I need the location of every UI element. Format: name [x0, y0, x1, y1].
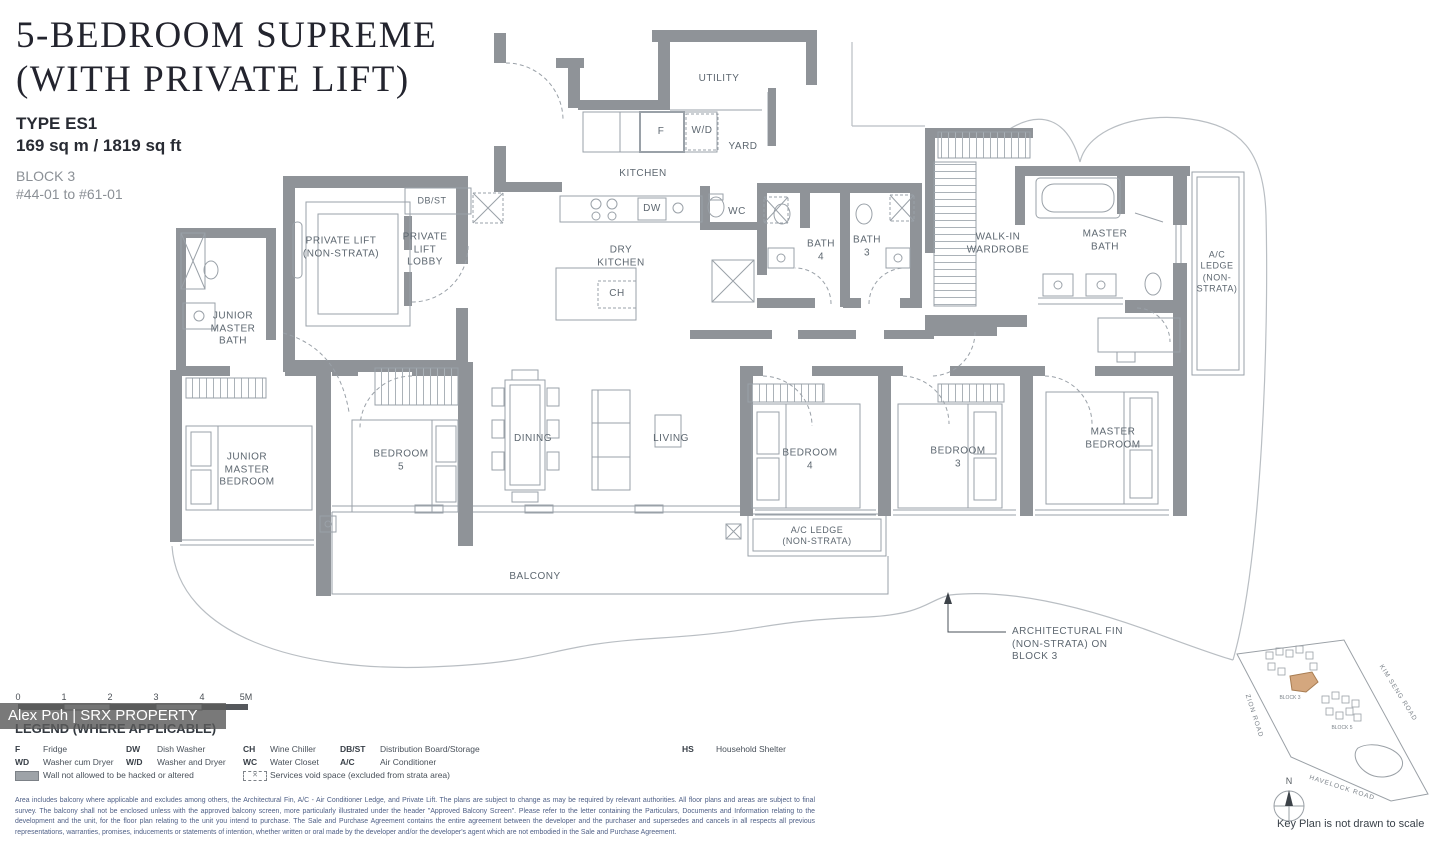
- room-label-junior-master-bedroom: JUNIOR MASTER BEDROOM: [219, 451, 274, 489]
- room-label-ac-ledge-bottom: A/C LEDGE (NON-STRATA): [782, 525, 851, 548]
- room-label-private-lift-lobby: PRIVATE LIFT LOBBY: [403, 231, 448, 269]
- room-label-living: LIVING: [653, 433, 689, 446]
- arch-fin-leader: [944, 592, 1006, 632]
- room-label-private-lift: PRIVATE LIFT (NON-STRATA): [303, 236, 379, 261]
- room-label-junior-master-bath: JUNIOR MASTER BATH: [211, 310, 256, 348]
- block-number: BLOCK 3: [16, 168, 75, 184]
- legend-abbr: HS: [682, 744, 694, 754]
- scale-tick-0: 0: [15, 692, 20, 702]
- architectural-fin-outline: [172, 42, 1267, 667]
- appliance-label-washer-dryer: W/D: [692, 125, 713, 138]
- legend-abbr: WD: [15, 757, 29, 767]
- legend-abbr-ch: CH: [243, 744, 255, 754]
- room-label-wc: WC: [728, 206, 746, 219]
- legend-abbr: CH: [243, 744, 255, 754]
- legend-label: Wall not allowed to be hacked or altered: [43, 770, 194, 780]
- legend-abbr: F: [15, 744, 20, 754]
- legend-abbr: WC: [243, 757, 257, 767]
- legend-abbr-ac: A/C: [340, 757, 355, 767]
- legend-abbr-dw: DW: [126, 744, 140, 754]
- room-label-balcony: BALCONY: [509, 571, 560, 584]
- appliance-label-fridge: F: [658, 126, 665, 139]
- room-label-yard: YARD: [728, 141, 757, 154]
- scale-tick-1: 1: [61, 692, 66, 702]
- legend-label: Washer cum Dryer: [43, 757, 114, 767]
- room-label-bath3: BATH 3: [853, 235, 881, 260]
- legend-label: Services void space (excluded from strat…: [270, 770, 450, 780]
- keyplan-block5-label: BLOCK 5: [1331, 725, 1352, 731]
- legend-label: Wine Chiller: [270, 744, 316, 754]
- legend-abbr-dbst: DB/ST: [340, 744, 366, 754]
- keyplan-block3-label: BLOCK 3: [1279, 695, 1300, 701]
- page-title: 5-BEDROOM SUPREME: [16, 14, 437, 57]
- room-label-bedroom3: BEDROOM 3: [930, 446, 985, 471]
- legend-void-symbol: ✕: [243, 771, 267, 781]
- scale-tick-3: 3: [153, 692, 158, 702]
- legend-label: Water Closet: [270, 757, 319, 767]
- scale-tick-5m: 5M: [240, 692, 253, 702]
- room-label-bedroom4: BEDROOM 4: [782, 448, 837, 473]
- unit-range: #44-01 to #61-01: [16, 186, 123, 202]
- legend-abbr-hs: HS: [682, 744, 694, 754]
- legend-label: Fridge: [43, 744, 67, 754]
- room-label-master-bath: MASTER BATH: [1083, 229, 1128, 254]
- appliance-label-dishwasher: DW: [643, 203, 661, 216]
- room-label-dining: DINING: [514, 433, 552, 446]
- structural-walls: [170, 30, 1190, 596]
- legend-abbr-wd: WD: [15, 757, 29, 767]
- legend-wall-symbol: [15, 771, 39, 781]
- disclaimer-text: Area includes balcony where applicable a…: [15, 796, 815, 839]
- legend-abbr: DW: [126, 744, 140, 754]
- legend-label: Washer and Dryer: [157, 757, 226, 767]
- scale-tick-4: 4: [199, 692, 204, 702]
- keyplan-note: Key Plan is not drawn to scale: [1277, 818, 1424, 830]
- legend-label: Dish Washer: [157, 744, 205, 754]
- arch-fin-note: ARCHITECTURAL FIN (NON-STRATA) ON BLOCK …: [1012, 626, 1123, 664]
- appliance-label-wine-chiller: CH: [609, 288, 624, 301]
- page-subtitle: (WITH PRIVATE LIFT): [16, 58, 410, 101]
- legend-abbr-f: F: [15, 744, 20, 754]
- legend-abbr: W/D: [126, 757, 143, 767]
- compass-north-label: N: [1286, 776, 1293, 786]
- legend-label: Distribution Board/Storage: [380, 744, 480, 754]
- unit-type: TYPE ES1: [16, 114, 97, 134]
- room-label-bath4: BATH 4: [807, 239, 835, 264]
- room-label-walk-in-wardrobe: WALK-IN WARDROBE: [967, 232, 1030, 257]
- agent-watermark: Alex Poh | SRX PROPERTY: [0, 703, 226, 729]
- legend-label: Household Shelter: [716, 744, 786, 754]
- room-label-dry-kitchen: DRY KITCHEN: [597, 245, 644, 270]
- room-label-ac-ledge-right: A/C LEDGE (NON- STRATA): [1197, 250, 1238, 295]
- unit-area: 169 sq m / 1819 sq ft: [16, 136, 181, 156]
- legend-abbr-w-d: W/D: [126, 757, 143, 767]
- room-label-db-st: DB/ST: [417, 195, 446, 206]
- legend-abbr: DB/ST: [340, 744, 366, 754]
- floor-plan-page: 5-BEDROOM SUPREME (WITH PRIVATE LIFT) TY…: [0, 0, 1440, 846]
- room-label-master-bedroom: MASTER BEDROOM: [1085, 427, 1140, 452]
- room-label-bedroom5: BEDROOM 5: [373, 449, 428, 474]
- room-label-utility: UTILITY: [699, 73, 740, 86]
- legend-abbr: A/C: [340, 757, 355, 767]
- legend-abbr-wc: WC: [243, 757, 257, 767]
- scale-tick-2: 2: [107, 692, 112, 702]
- room-label-kitchen: KITCHEN: [619, 168, 666, 181]
- legend-label: Air Conditioner: [380, 757, 436, 767]
